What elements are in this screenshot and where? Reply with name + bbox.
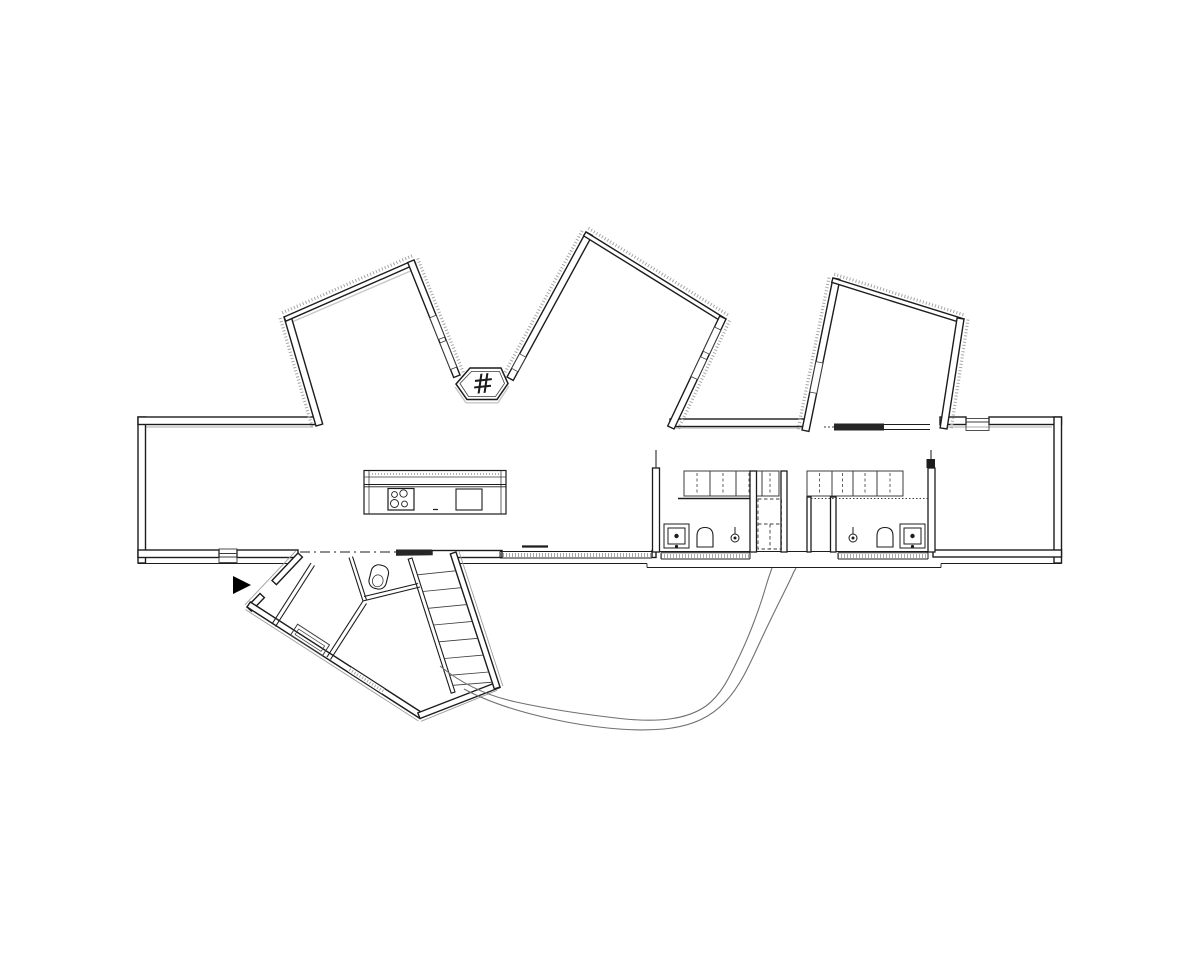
bath2-left-wall bbox=[831, 497, 837, 552]
north-wing-left bbox=[284, 260, 460, 426]
wing1-left-wall bbox=[284, 315, 323, 426]
column-post bbox=[927, 459, 936, 468]
bath2-shower bbox=[849, 527, 857, 542]
wing3-left-wall bbox=[802, 278, 840, 431]
fireplace: # bbox=[456, 368, 508, 401]
bedroom-block bbox=[653, 450, 936, 559]
band-top-wall-east-b bbox=[989, 417, 1062, 425]
wing3-top-wall bbox=[832, 278, 964, 323]
bath2-door-wall bbox=[807, 497, 811, 552]
window-bottom-west bbox=[219, 549, 237, 563]
band-right-wall bbox=[1054, 417, 1062, 563]
bath2-sink bbox=[900, 524, 925, 548]
fireplace-hash-icon: # bbox=[470, 368, 496, 401]
wing2-windows bbox=[512, 327, 721, 380]
band-top-wall-west bbox=[138, 417, 320, 425]
entrance-arrow-icon bbox=[233, 576, 251, 594]
floor-plan-page: # bbox=[0, 0, 1200, 960]
floor-plan-drawing: # bbox=[0, 0, 1200, 960]
wing3-right-wall bbox=[940, 318, 964, 429]
wing2-top-wall bbox=[584, 232, 726, 323]
north-wing-right bbox=[802, 278, 964, 431]
wardrobe-run-2 bbox=[807, 471, 903, 496]
band-top-wall-mid bbox=[670, 419, 808, 427]
sill-west bbox=[500, 547, 652, 559]
garden-path bbox=[440, 568, 796, 730]
wing1-windows bbox=[430, 315, 457, 369]
wardrobe-run-1 bbox=[684, 471, 779, 496]
bath1-sink bbox=[664, 524, 689, 548]
outer-ground-lines bbox=[138, 564, 1062, 568]
bath1-shower bbox=[731, 527, 739, 542]
closet-shelves bbox=[758, 499, 782, 549]
block-left-wall bbox=[653, 468, 660, 552]
sliding-door-bar-east bbox=[834, 424, 884, 431]
band-bottom-wall-w1 bbox=[138, 550, 219, 558]
wing3-sliding-door bbox=[824, 424, 930, 431]
closet-left-wall bbox=[750, 471, 757, 552]
band-left-wall bbox=[138, 417, 146, 563]
sill-bedroom-2 bbox=[838, 553, 928, 559]
kitchen-island bbox=[364, 471, 506, 515]
bath2-toilet bbox=[877, 528, 893, 548]
sw-entry-doorline bbox=[300, 550, 432, 557]
bath1-toilet bbox=[697, 528, 713, 548]
block-right-wall bbox=[928, 468, 935, 552]
shadow-lines bbox=[146, 270, 1052, 429]
wing1-top-wall bbox=[284, 260, 416, 321]
window-top-east bbox=[966, 419, 989, 431]
band-bottom-wall-east bbox=[933, 550, 1062, 557]
southwest-entry-wing bbox=[245, 551, 503, 721]
band-bottom-wall-w2 bbox=[237, 550, 298, 558]
band-walls bbox=[138, 417, 1062, 563]
sill-bedroom-1 bbox=[661, 553, 750, 559]
